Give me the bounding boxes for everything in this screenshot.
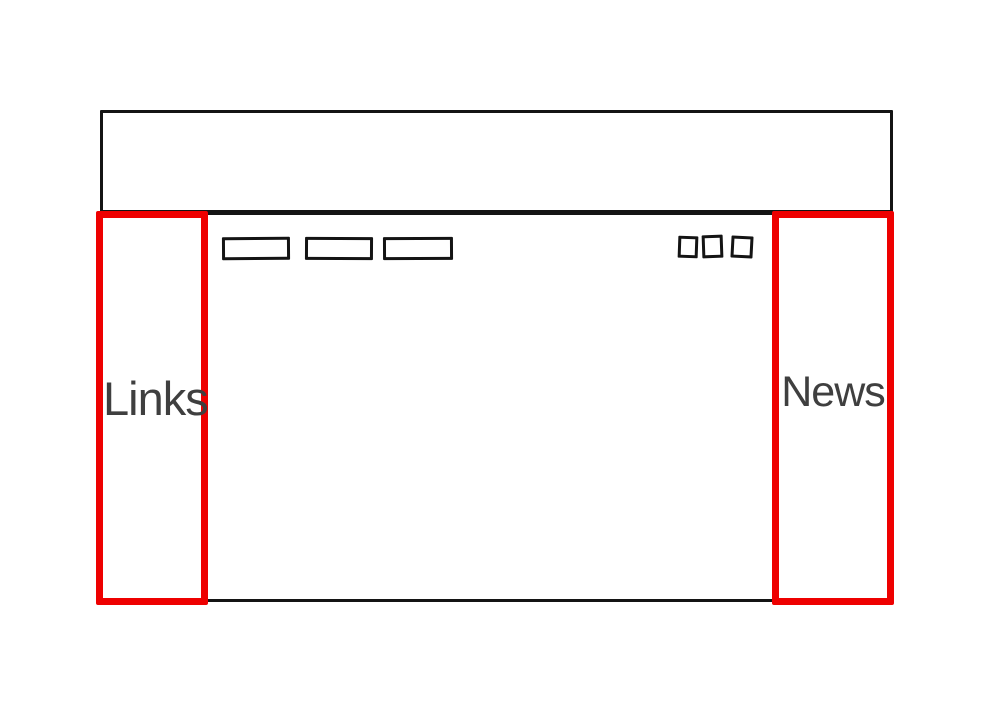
wireframe-canvas: Links News	[0, 0, 1000, 713]
header-box	[100, 110, 893, 213]
toolbar-icon-placeholder-1[interactable]	[678, 236, 699, 259]
toolbar-icon-placeholder-3[interactable]	[730, 235, 753, 258]
links-label: Links	[103, 374, 201, 423]
nav-button-placeholder-3[interactable]	[383, 237, 453, 260]
toolbar-icon-placeholder-2[interactable]	[702, 235, 724, 259]
nav-button-placeholder-2[interactable]	[305, 237, 373, 260]
news-label: News	[779, 370, 887, 415]
sidebar-links-box: Links	[96, 211, 208, 605]
sidebar-news-box: News	[772, 211, 894, 605]
nav-button-placeholder-1[interactable]	[222, 237, 290, 260]
